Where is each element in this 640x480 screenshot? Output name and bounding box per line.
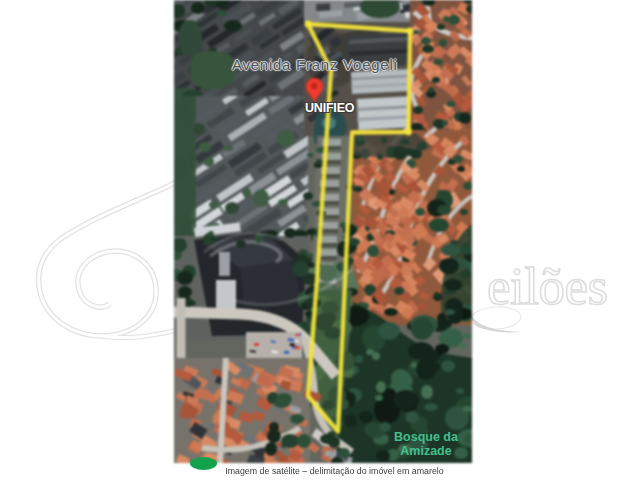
svg-text:eilões: eilões: [487, 257, 608, 315]
